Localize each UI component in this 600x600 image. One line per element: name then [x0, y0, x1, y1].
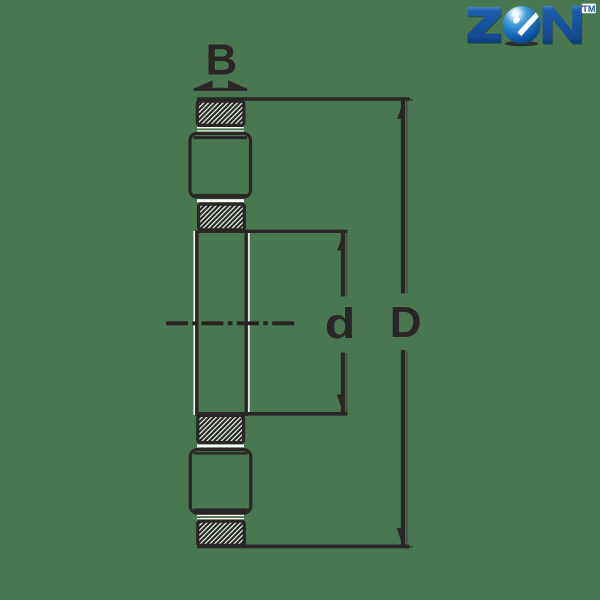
svg-text:D: D [390, 298, 422, 347]
svg-text:d: d [325, 299, 355, 347]
svg-text:TM: TM [582, 4, 595, 14]
svg-text:B: B [206, 37, 237, 85]
